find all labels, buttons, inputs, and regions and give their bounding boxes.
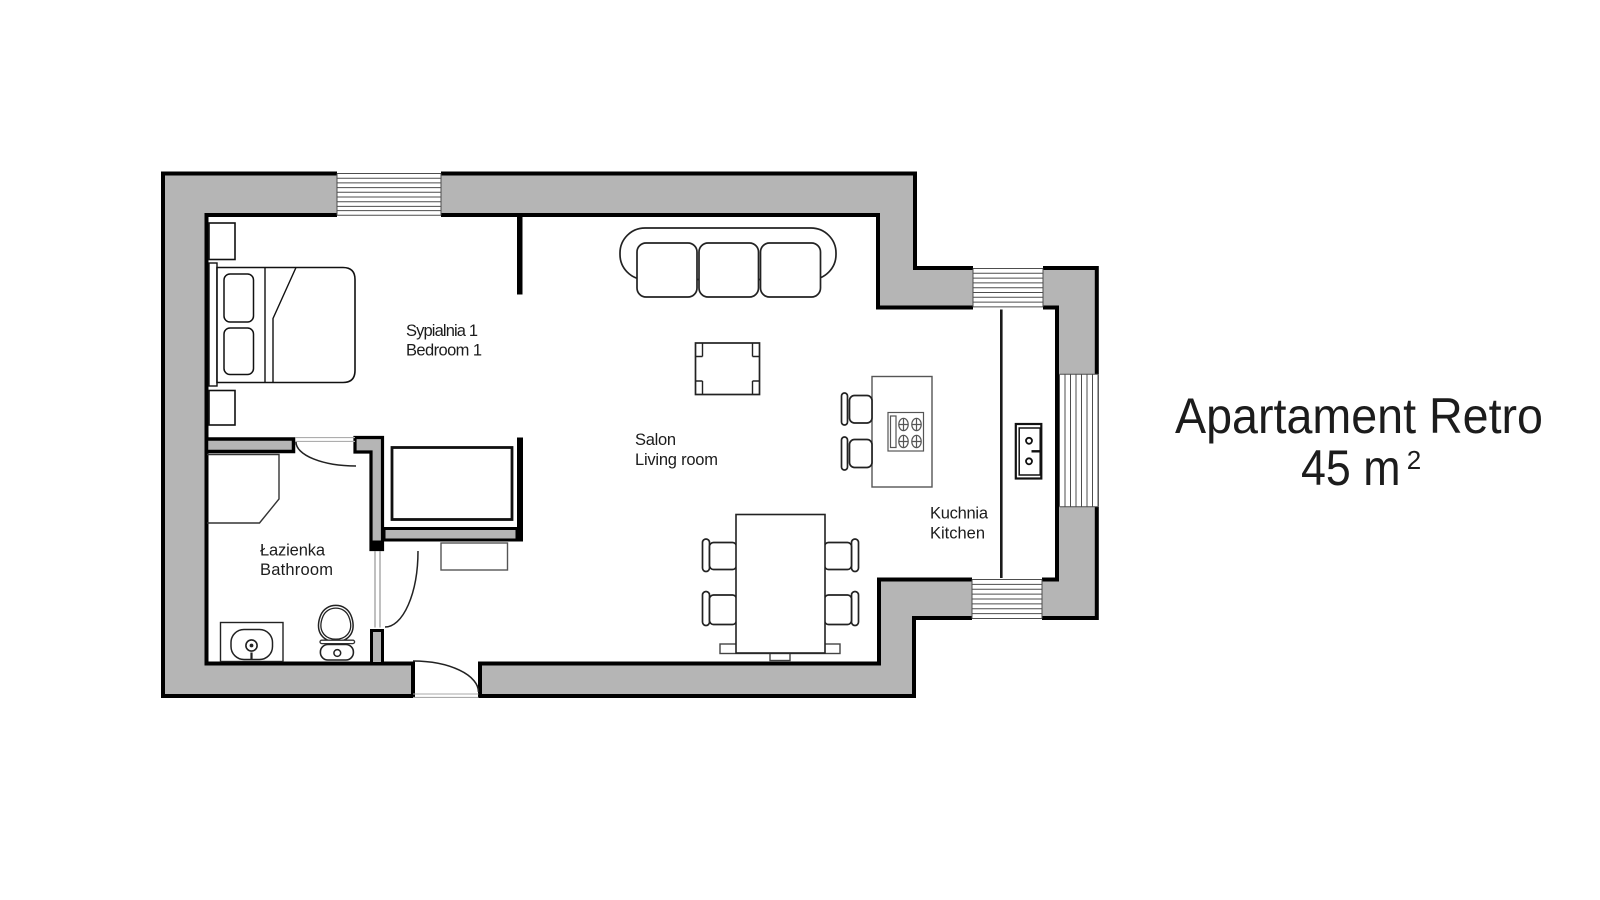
svg-text:Kitchen: Kitchen [930, 525, 985, 543]
svg-text:2: 2 [1407, 445, 1421, 475]
svg-text:Bedroom 1: Bedroom 1 [406, 342, 482, 360]
svg-text:Sypialnia 1: Sypialnia 1 [406, 322, 478, 340]
svg-text:Łazienka: Łazienka [260, 542, 326, 560]
svg-text:Salon: Salon [635, 431, 676, 449]
svg-text:Kuchnia: Kuchnia [930, 505, 989, 523]
svg-text:Bathroom: Bathroom [260, 561, 333, 579]
svg-text:Apartament Retro: Apartament Retro [1175, 388, 1543, 444]
svg-text:Living room: Living room [635, 451, 718, 469]
svg-text:45 m: 45 m [1301, 440, 1401, 496]
